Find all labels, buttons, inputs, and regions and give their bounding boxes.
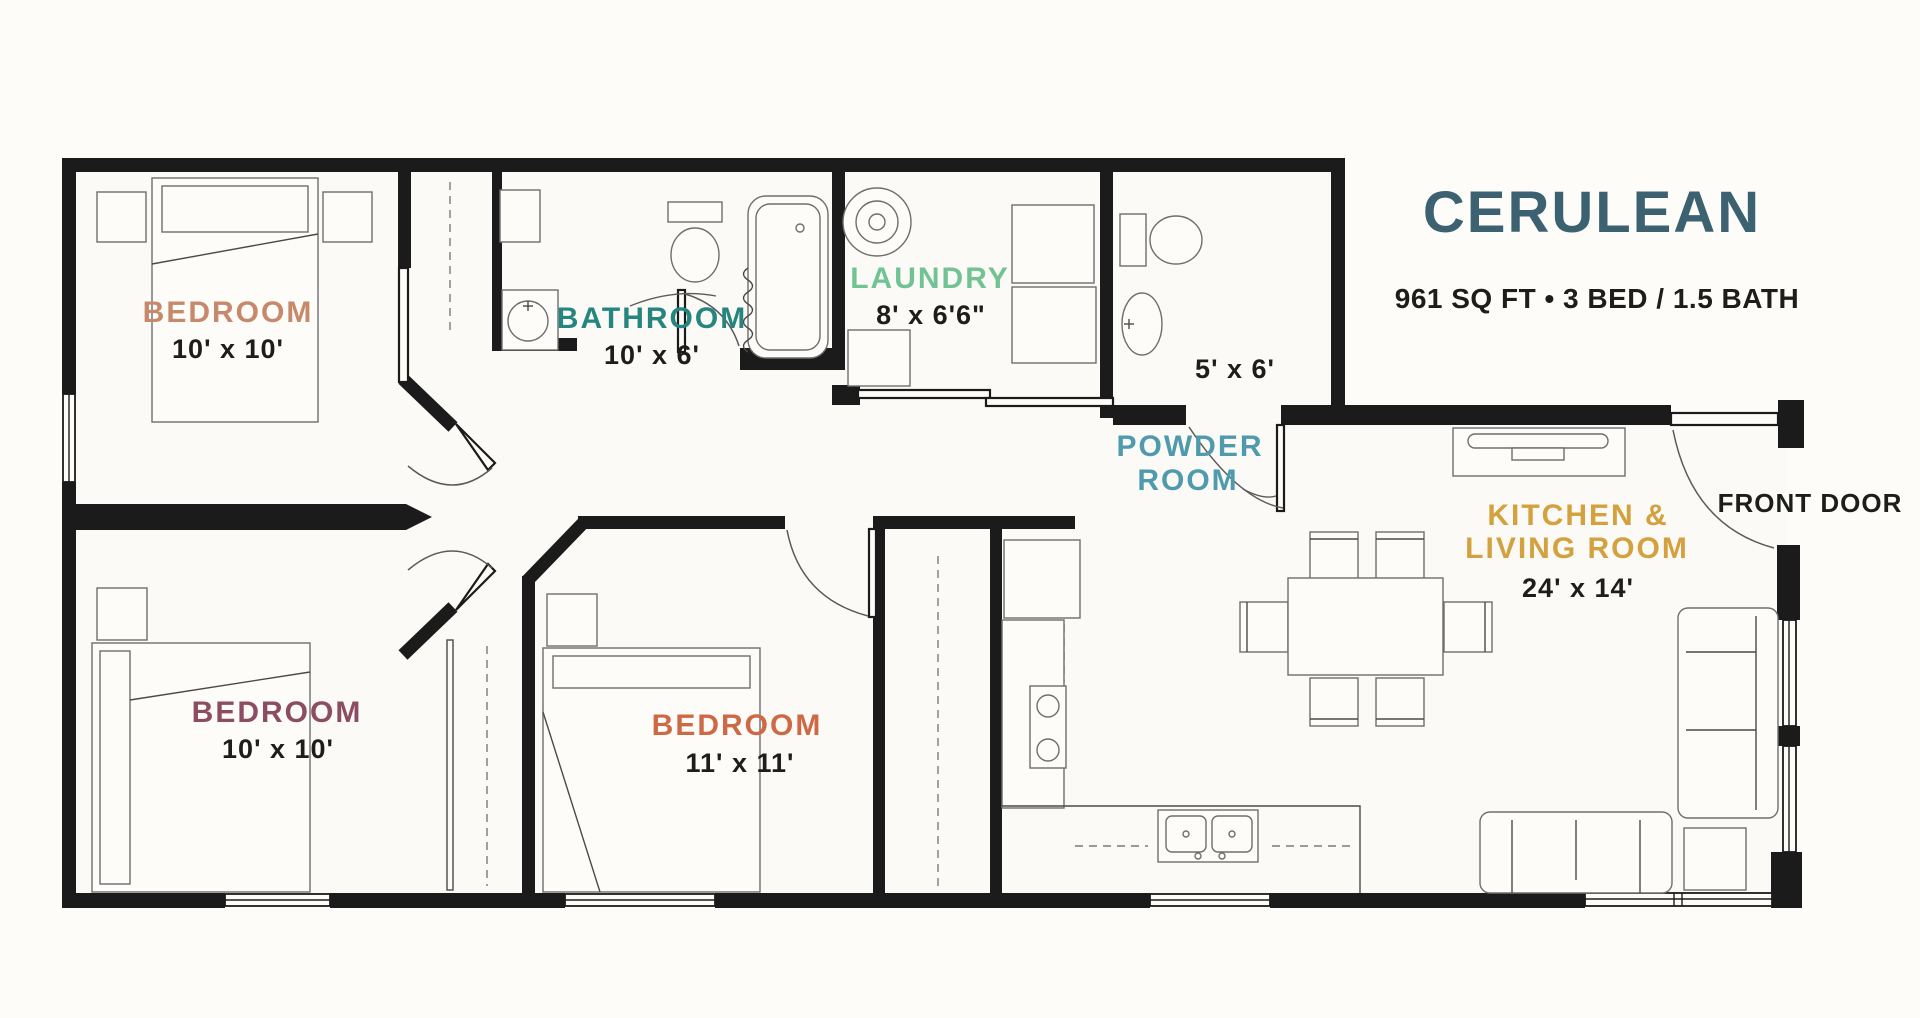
powder-toilet xyxy=(1120,214,1202,266)
bedroom-3-bed xyxy=(92,643,310,892)
svg-text:11' x 11': 11' x 11' xyxy=(686,748,795,778)
svg-text:POWDER: POWDER xyxy=(1117,430,1264,463)
svg-text:BEDROOM: BEDROOM xyxy=(652,709,823,742)
utility-cabinet xyxy=(848,330,910,386)
window xyxy=(225,894,330,906)
svg-text:10' x 10': 10' x 10' xyxy=(222,734,334,764)
bathtub xyxy=(744,196,829,358)
water-heater xyxy=(843,188,911,256)
bathroom-toilet xyxy=(668,202,722,282)
nightstand xyxy=(97,588,147,640)
svg-text:10' x 6': 10' x 6' xyxy=(604,340,700,370)
window xyxy=(63,394,75,482)
sofa-right xyxy=(1678,608,1778,818)
nightstand xyxy=(323,192,372,242)
tv-console xyxy=(1453,428,1625,476)
plan-title: CERULEAN xyxy=(1423,180,1761,245)
svg-text:5' x 6': 5' x 6' xyxy=(1195,354,1275,384)
svg-text:BEDROOM: BEDROOM xyxy=(143,296,314,329)
stove xyxy=(1030,686,1066,768)
svg-text:KITCHEN &: KITCHEN & xyxy=(1487,499,1668,532)
floor-plan-page: CERULEAN 961 SQ FT • 3 BED / 1.5 BATH BE… xyxy=(0,0,1920,1018)
linen-cabinet xyxy=(500,190,540,242)
window xyxy=(1783,746,1796,852)
front-door-label: FRONT DOOR xyxy=(1718,488,1903,518)
svg-text:BATHROOM: BATHROOM xyxy=(557,302,747,335)
window xyxy=(1783,620,1796,726)
bathroom-vanity-sink xyxy=(502,290,558,350)
svg-text:LIVING ROOM: LIVING ROOM xyxy=(1465,532,1689,565)
svg-text:LAUNDRY: LAUNDRY xyxy=(850,262,1010,295)
kitchen-sink xyxy=(1158,810,1258,862)
nightstand xyxy=(547,594,597,646)
plan-summary: 961 SQ FT • 3 BED / 1.5 BATH xyxy=(1395,283,1800,314)
sliding-glass-door xyxy=(1585,893,1772,906)
tv xyxy=(1468,434,1608,448)
floor-plan: CERULEAN 961 SQ FT • 3 BED / 1.5 BATH BE… xyxy=(0,0,1920,1018)
dryer xyxy=(1012,287,1096,363)
window xyxy=(1150,894,1270,906)
svg-text:8' x 6'6": 8' x 6'6" xyxy=(876,300,986,330)
side-table xyxy=(1684,828,1746,890)
sofa-bottom xyxy=(1480,812,1672,893)
window xyxy=(565,894,715,906)
nightstand xyxy=(97,192,146,242)
refrigerator xyxy=(1004,540,1080,618)
svg-text:BEDROOM: BEDROOM xyxy=(192,696,363,729)
svg-text:10' x 10': 10' x 10' xyxy=(172,334,284,364)
powder-sink xyxy=(1122,293,1162,355)
svg-text:24' x 14': 24' x 14' xyxy=(1522,573,1634,603)
bedroom-1-closet-door xyxy=(399,268,408,382)
svg-text:ROOM: ROOM xyxy=(1137,464,1238,497)
washer xyxy=(1012,205,1094,283)
dining-table xyxy=(1288,578,1443,675)
